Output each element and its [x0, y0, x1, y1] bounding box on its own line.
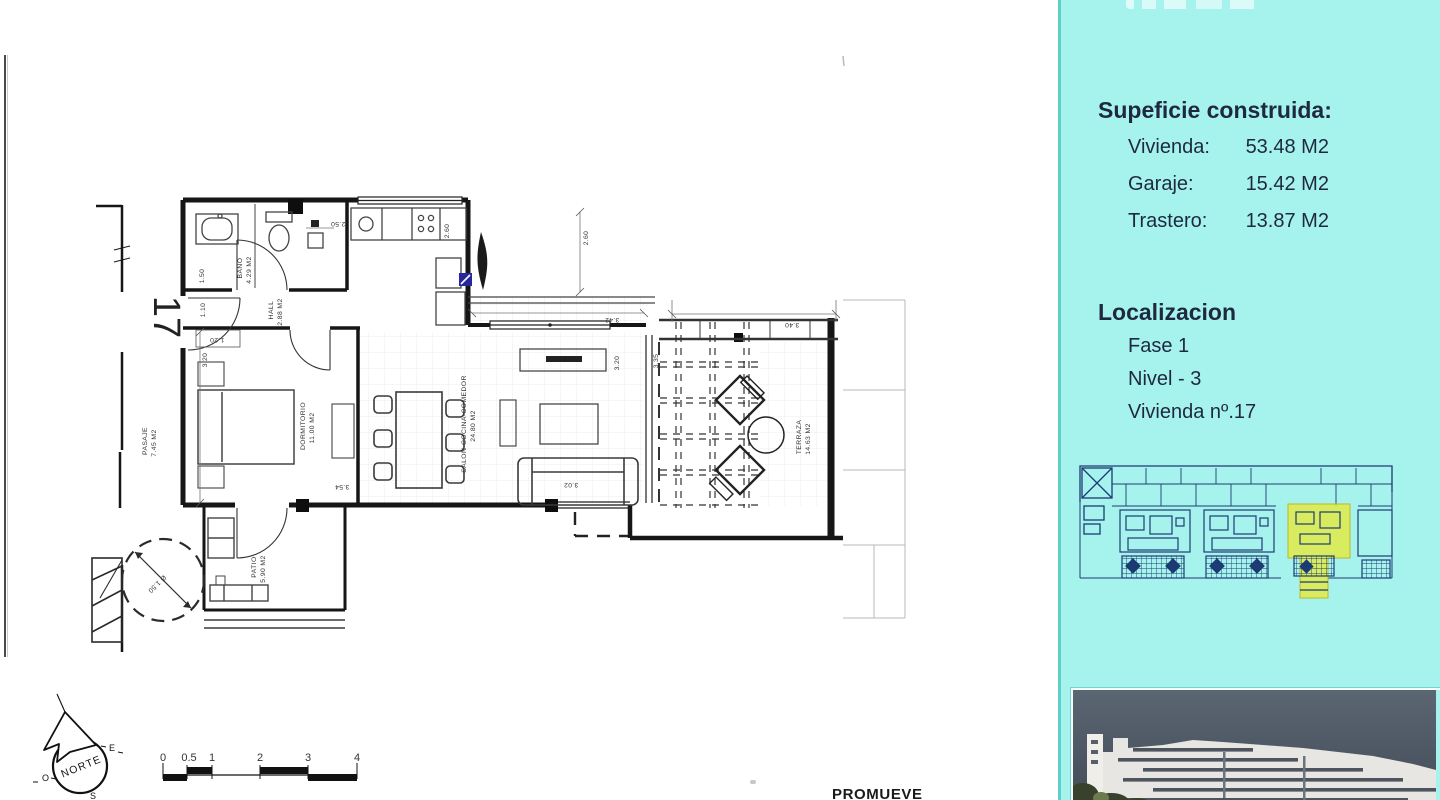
surface-row-value: 53.48 M2: [1246, 136, 1329, 158]
compass-west-label: O: [42, 773, 49, 783]
surface-row-garaje: Garaje: 15.42 M2: [1128, 166, 1329, 203]
scalebar-tick-1: 1: [209, 752, 215, 764]
projection-dashed: [575, 512, 628, 536]
scalebar-tick-0: 0: [160, 752, 166, 764]
surface-row-trastero: Trastero: 13.87 M2: [1128, 203, 1329, 240]
cropped-header-text-fragment: [1126, 0, 1276, 9]
dimension-label: 3.20: [202, 353, 209, 367]
dimension-label: Ø 1.50: [146, 573, 167, 594]
floorplan-region: 2.50 2.60 2.60 1.50 1.20 1.10 3.20 3.54 …: [0, 0, 1058, 800]
patio-fixtures: [208, 518, 268, 601]
plan-sheet-page: 2.50 2.60 2.60 1.50 1.20 1.10 3.20 3.54 …: [0, 0, 1440, 800]
location-title: Localizacion: [1098, 299, 1236, 326]
dimension-label: 3.20: [614, 356, 621, 370]
location-row-nivel: Nivel - 3: [1128, 363, 1256, 396]
scale-bar: 0 0.5 1 2 3 4: [160, 752, 360, 781]
location-row-fase: Fase 1: [1128, 330, 1256, 363]
room-area-pasaje: 7.45 M2: [151, 429, 158, 456]
scalebar-tick-4: 4: [354, 752, 360, 764]
dimension-label: 2.60: [583, 231, 590, 245]
scalebar-tick-2: 2: [257, 752, 263, 764]
wall-plant-symbol: [477, 232, 487, 290]
bedroom-furniture: [198, 362, 354, 488]
dimension-label: 3.35: [653, 354, 660, 368]
room-area-dormitorio: 11.00 M2: [309, 412, 316, 443]
room-area-bano: 4.29 M2: [246, 256, 253, 283]
room-name-dormitorio: DORMITORIO: [300, 402, 307, 450]
room-area-hall: 2.88 M2: [277, 298, 284, 325]
building-photo: [1071, 688, 1440, 800]
built-surface-list: Vivienda: 53.48 M2 Garaje: 15.42 M2 Tras…: [1128, 129, 1329, 240]
surface-row-label: Vivienda:: [1128, 129, 1240, 166]
dimension-label: 1.50: [199, 269, 206, 283]
room-name-terraza: TERRAZA: [796, 420, 803, 455]
north-compass: NORTE E O S: [33, 694, 123, 800]
dimension-label: 3.42: [605, 316, 619, 323]
highlighted-unit: [1288, 504, 1350, 598]
surface-row-value: 15.42 M2: [1246, 173, 1329, 195]
built-surface-title: Supeficie construida:: [1098, 97, 1332, 124]
location-row-vivienda: Vivienda nº.17: [1128, 396, 1256, 429]
location-list: Fase 1 Nivel - 3 Vivienda nº.17: [1128, 330, 1256, 429]
room-area-patio: 5.90 M2: [260, 555, 267, 582]
room-area-terraza: 14.63 M2: [805, 423, 812, 455]
room-name-patio: PATIO: [251, 556, 258, 577]
compass-east-label: E: [109, 743, 115, 753]
compass-north-label: NORTE: [59, 753, 103, 780]
small-mark: [750, 780, 756, 784]
dimension-label: 2.50: [331, 220, 345, 227]
scalebar-tick-05: 0.5: [181, 752, 196, 764]
promoter-label: PROMUEVE: [832, 786, 923, 800]
dimension-label: 1.20: [210, 336, 224, 343]
room-name-salon: SALON-COCINA-COMEDOR: [461, 375, 468, 473]
surface-row-label: Trastero:: [1128, 203, 1240, 240]
stair-hatch: [92, 558, 122, 642]
compass-south-label: S: [90, 791, 96, 800]
corner-tick: [843, 56, 844, 66]
dimension-label: 1.10: [200, 303, 207, 317]
legend-marker: [459, 273, 472, 286]
dimension-label: 3.40: [785, 321, 799, 328]
room-name-hall: HALL: [268, 301, 275, 320]
room-area-salon: 24.80 M2: [470, 410, 477, 442]
sidebar-edge-line: [1058, 0, 1061, 800]
siteplan-thumbnail: [1076, 458, 1398, 606]
room-name-pasaje: PASAJE: [142, 427, 149, 455]
neighbour-faint-lines: [843, 300, 905, 618]
scalebar-tick-3: 3: [305, 752, 311, 764]
bathroom-fixtures: [196, 204, 323, 288]
dimension-label: 3.54: [335, 483, 349, 490]
pasaje-walls: [96, 205, 130, 652]
surface-row-vivienda: Vivienda: 53.48 M2: [1128, 129, 1329, 166]
dimension-label: 2.60: [444, 224, 451, 238]
unit-number-label: 17: [145, 296, 187, 338]
dimension-label: 3.02: [564, 481, 578, 488]
room-name-bano: BAÑO: [235, 258, 244, 279]
surface-row-label: Garaje:: [1128, 166, 1240, 203]
info-sidebar: Supeficie construida: Vivienda: 53.48 M2…: [1058, 0, 1440, 800]
surface-row-value: 13.87 M2: [1246, 210, 1329, 232]
floorplan-svg: 2.50 2.60 2.60 1.50 1.20 1.10 3.20 3.54 …: [0, 0, 1058, 800]
